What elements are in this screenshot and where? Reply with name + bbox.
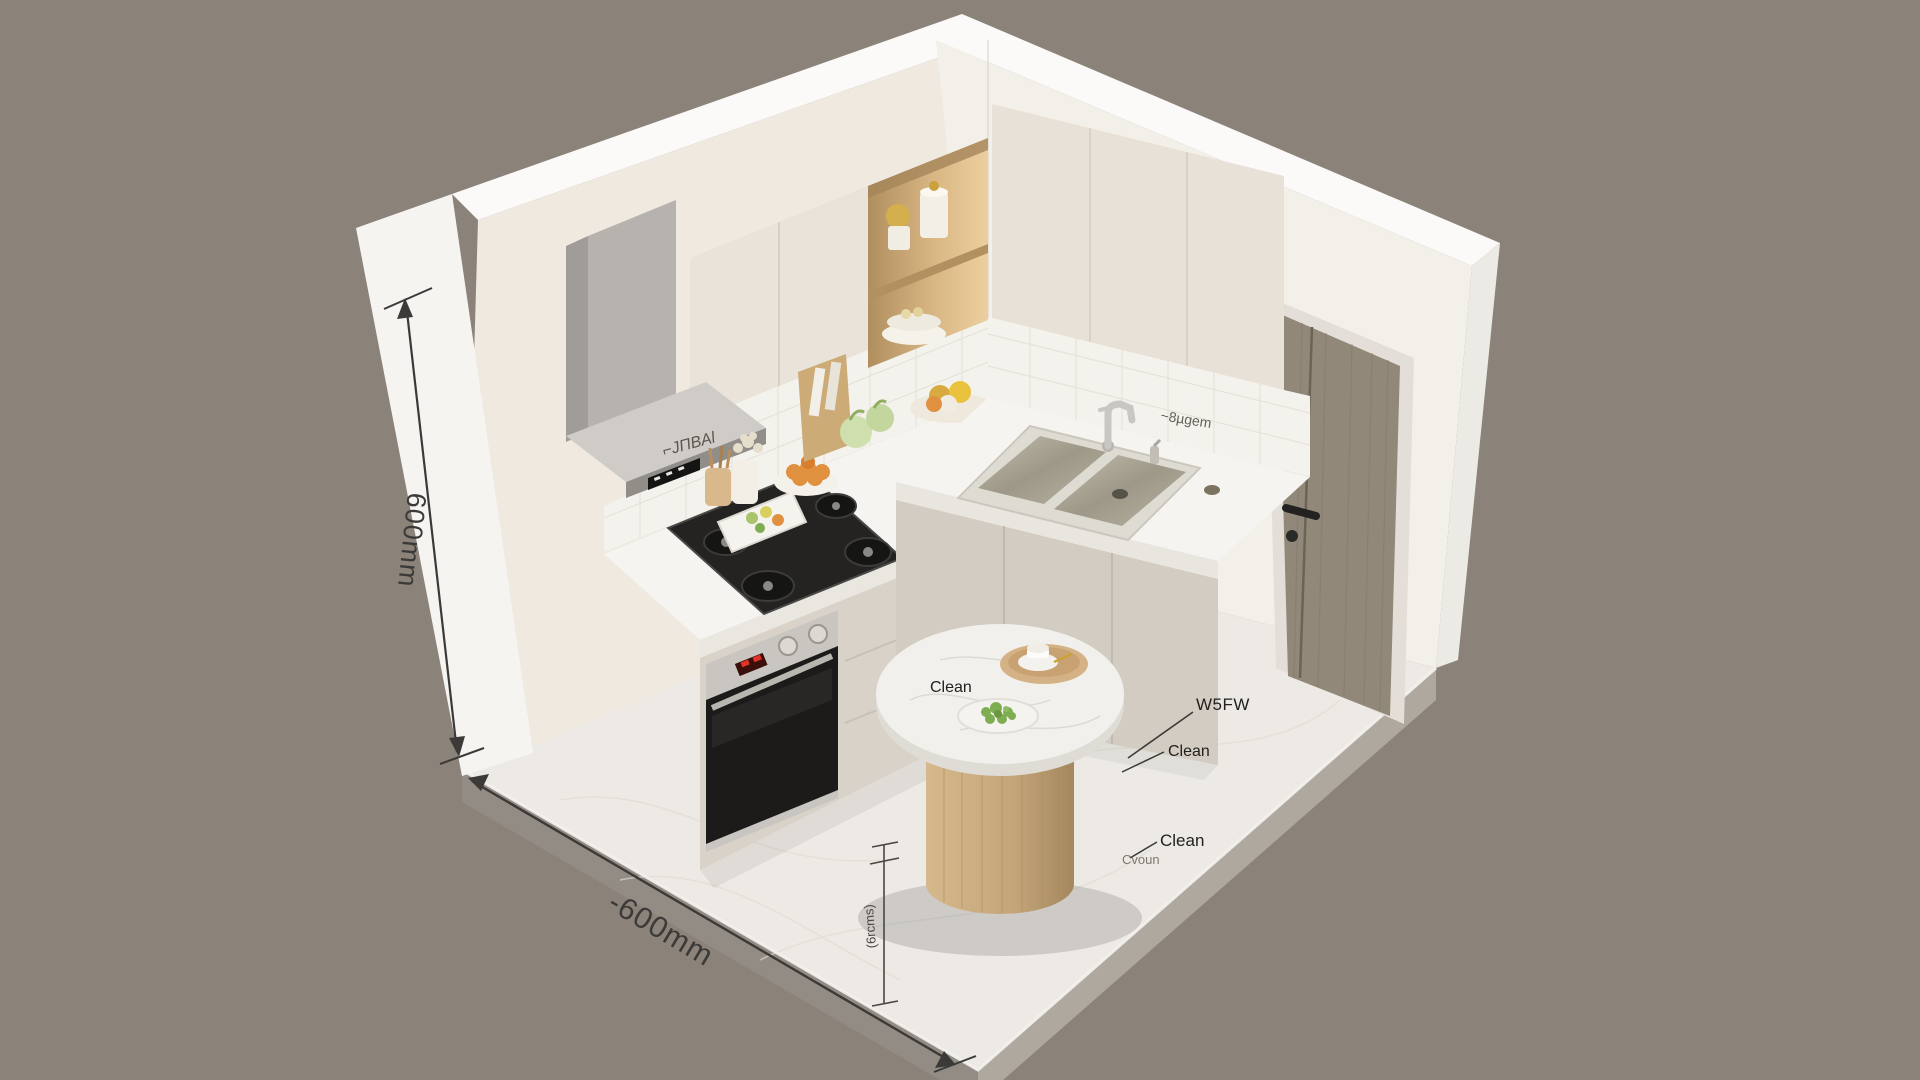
label-clean-table: Clean: [930, 679, 972, 696]
screenshot-canvas: ⌐JΠBAl ~8µgem 600mm -600mm (6rcms) Clean…: [0, 0, 1920, 1080]
niche-canister: [920, 181, 948, 238]
hood-chimney: [588, 200, 676, 432]
oven-knob: [809, 625, 827, 643]
oven-knob: [779, 637, 797, 655]
salad-plate: [958, 699, 1038, 733]
door-lock-rosette: [1286, 530, 1298, 542]
label-clean-floor-low: Clean: [1160, 831, 1204, 850]
cutting-board: [798, 354, 852, 462]
tabletop: [876, 624, 1124, 764]
niche-gold-decor: [886, 204, 910, 250]
kitchen-render: ⌐JΠBAl ~8µgem 600mm -600mm (6rcms) Clean…: [0, 0, 1920, 1080]
dimension-label-floor-small: (6rcms): [861, 904, 879, 949]
label-clean-floor-faded: Cvoun: [1122, 852, 1160, 867]
entry-door: [1266, 296, 1414, 724]
label-code-w5fw: W5FW: [1196, 695, 1250, 714]
sink-drain: [1112, 489, 1128, 499]
counter-hole: [1204, 485, 1220, 495]
label-clean-floor-mid: Clean: [1168, 743, 1210, 760]
